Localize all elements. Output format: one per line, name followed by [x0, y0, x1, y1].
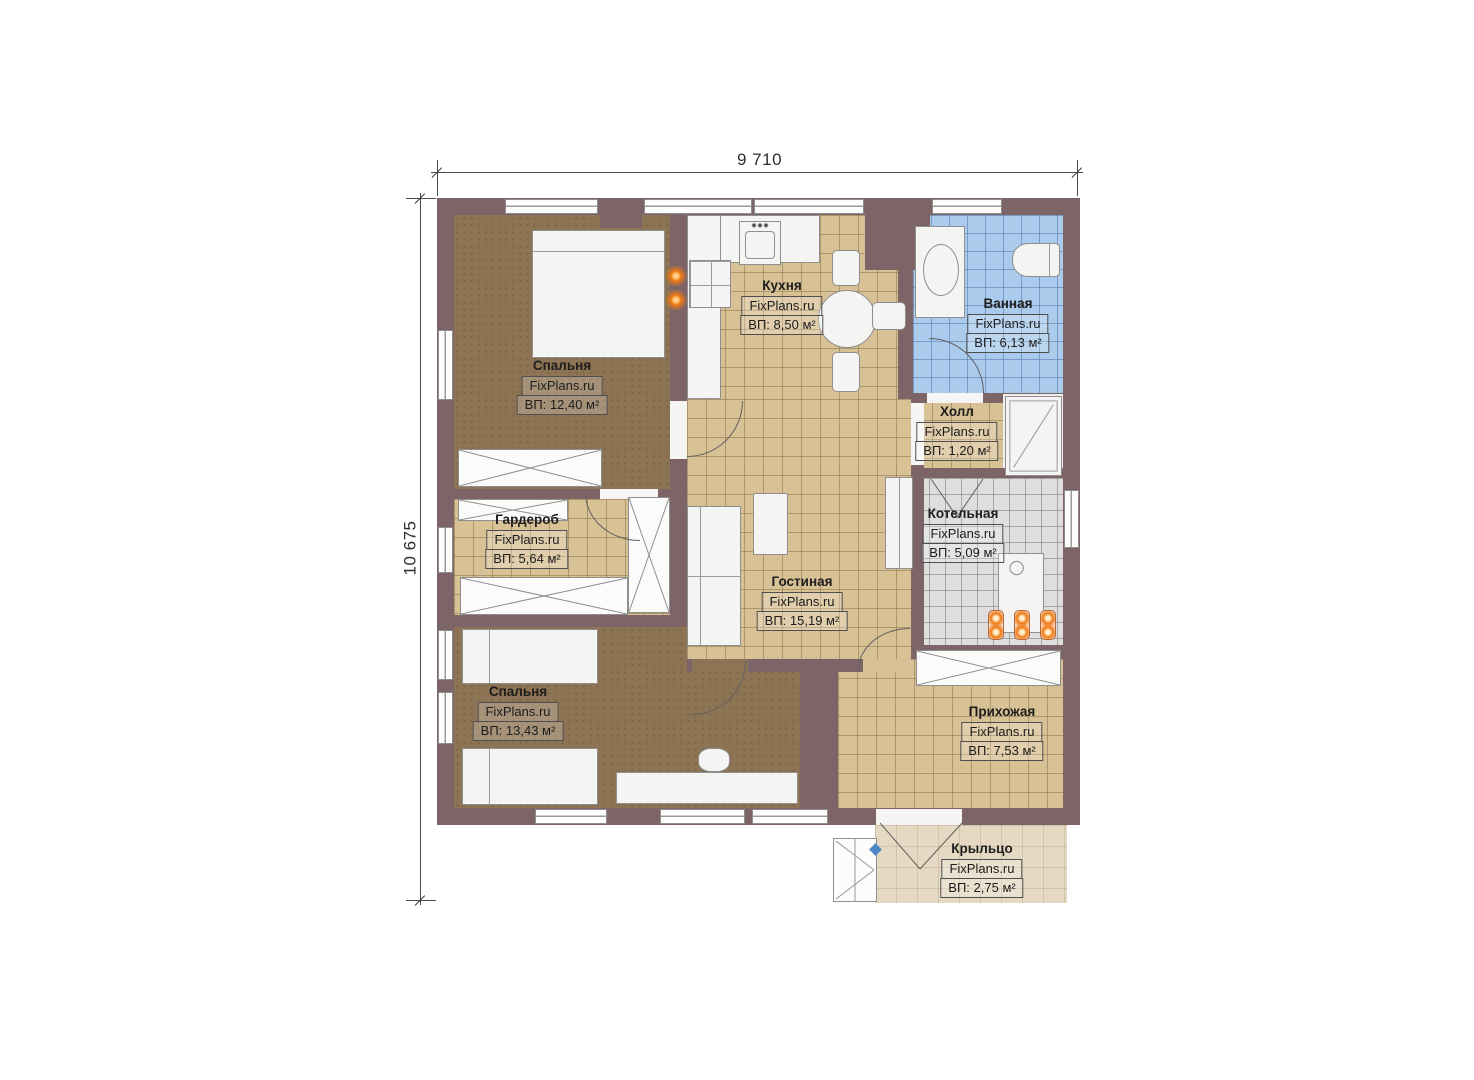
room-label-bathroom: Ванная FixPlans.ru ВП: 6,13 м²	[966, 296, 1049, 353]
room-brand: FixPlans.ru	[477, 702, 558, 722]
room-area: ВП: 13,43 м²	[473, 721, 564, 741]
room-label-entry: Прихожая FixPlans.ru ВП: 7,53 м²	[960, 704, 1043, 761]
dining-table	[818, 290, 876, 348]
room-brand: FixPlans.ru	[761, 592, 842, 612]
stove-burner-glow	[664, 266, 688, 286]
room-name: Ванная	[966, 296, 1049, 311]
wardrobe-cabinet	[458, 449, 602, 487]
room-area: ВП: 15,19 м²	[757, 611, 848, 631]
room-label-boiler: Котельная FixPlans.ru ВП: 5,09 м²	[921, 506, 1004, 563]
wardrobe-cabinet	[460, 577, 628, 615]
room-area: ВП: 1,20 м²	[915, 441, 998, 461]
door-opening-bedroom-top	[670, 401, 687, 459]
room-label-porch: Крыльцо FixPlans.ru ВП: 2,75 м²	[940, 841, 1023, 898]
room-name: Спальня	[473, 684, 564, 699]
dimension-width-label: 9 710	[737, 150, 782, 170]
room-label-hall: Холл FixPlans.ru ВП: 1,20 м²	[915, 404, 998, 461]
extension-line	[1077, 160, 1078, 196]
room-label-bedroom-bottom: Спальня FixPlans.ru ВП: 13,43 м²	[473, 684, 564, 741]
door-opening-bathroom	[927, 393, 983, 403]
room-brand: FixPlans.ru	[521, 376, 602, 396]
room-name: Спальня	[517, 358, 608, 373]
chair	[832, 352, 860, 392]
chair	[872, 302, 906, 330]
chair	[698, 748, 730, 772]
room-area: ВП: 5,64 м²	[485, 549, 568, 569]
room-area: ВП: 2,75 м²	[940, 878, 1023, 898]
wall-bedroom2-entry	[806, 659, 838, 808]
room-label-kitchen: Кухня FixPlans.ru ВП: 8,50 м²	[740, 278, 823, 335]
window	[535, 809, 607, 824]
window	[660, 809, 745, 824]
dimension-height-label: 10 675	[401, 521, 421, 576]
tv-console	[885, 477, 913, 569]
toilet	[1012, 243, 1060, 277]
wall-pier-top-left	[600, 198, 642, 228]
room-name: Котельная	[921, 506, 1004, 521]
room-name: Крыльцо	[940, 841, 1023, 856]
room-name: Гостиная	[757, 574, 848, 589]
window	[1064, 490, 1079, 548]
room-name: Холл	[915, 404, 998, 419]
coffee-table	[753, 493, 788, 555]
room-label-wardrobe: Гардероб FixPlans.ru ВП: 5,64 м²	[485, 512, 568, 569]
window	[752, 809, 828, 824]
dimension-width-line	[431, 172, 1083, 173]
room-brand: FixPlans.ru	[916, 422, 997, 442]
washbasin	[923, 244, 959, 296]
room-brand: FixPlans.ru	[741, 296, 822, 316]
stove-burner-glow	[664, 290, 688, 310]
room-brand: FixPlans.ru	[967, 314, 1048, 334]
radiator-burner	[1040, 610, 1056, 640]
chair	[832, 250, 860, 286]
sofa	[687, 506, 741, 646]
room-name: Кухня	[740, 278, 823, 293]
window	[438, 692, 453, 744]
floorplan-canvas: 9 710 10 675	[0, 0, 1474, 1080]
radiator-burner	[988, 610, 1004, 640]
radiator-burner	[1014, 610, 1030, 640]
room-brand: FixPlans.ru	[486, 530, 567, 550]
window	[644, 199, 752, 214]
shower-tray	[1005, 396, 1062, 476]
room-label-living: Гостиная FixPlans.ru ВП: 15,19 м²	[757, 574, 848, 631]
room-area: ВП: 6,13 м²	[966, 333, 1049, 353]
single-bed	[462, 629, 598, 684]
sink-basin	[745, 231, 775, 259]
room-brand: FixPlans.ru	[922, 524, 1003, 544]
wall-wardrobe-bedroom2	[454, 615, 687, 627]
window	[438, 630, 453, 680]
window	[505, 199, 598, 214]
window	[932, 199, 1002, 214]
wardrobe-cabinet	[916, 650, 1061, 686]
room-brand: FixPlans.ru	[941, 859, 1022, 879]
single-bed	[462, 748, 598, 805]
room-area: ВП: 8,50 м²	[740, 315, 823, 335]
stove	[689, 260, 731, 308]
room-area: ВП: 12,40 м²	[517, 395, 608, 415]
room-label-bedroom-top: Спальня FixPlans.ru ВП: 12,40 м²	[517, 358, 608, 415]
room-name: Гардероб	[485, 512, 568, 527]
window	[754, 199, 864, 214]
room-brand: FixPlans.ru	[961, 722, 1042, 742]
window	[438, 330, 453, 400]
room-area: ВП: 5,09 м²	[921, 543, 1004, 563]
desk	[616, 772, 798, 804]
extension-line	[437, 160, 438, 196]
room-area: ВП: 7,53 м²	[960, 741, 1043, 761]
window	[438, 527, 453, 573]
room-name: Прихожая	[960, 704, 1043, 719]
double-bed	[532, 230, 665, 358]
